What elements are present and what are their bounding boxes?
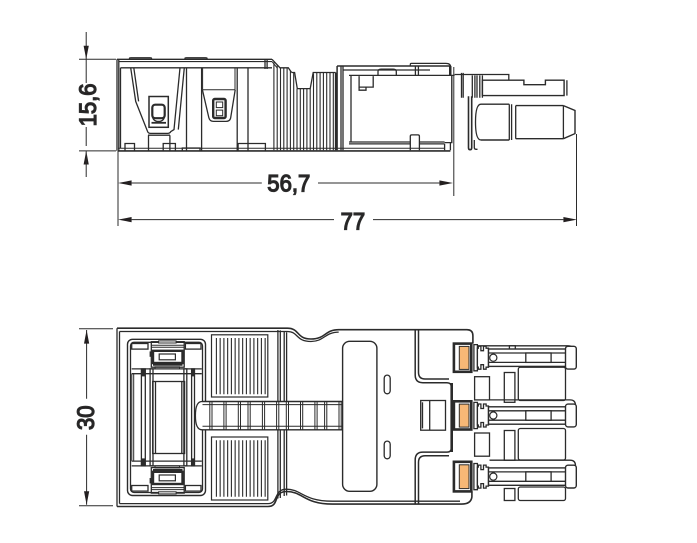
svg-text:15,6: 15,6 bbox=[74, 83, 101, 126]
svg-text:56,7: 56,7 bbox=[267, 170, 310, 197]
svg-text:30: 30 bbox=[72, 405, 99, 430]
svg-text:77: 77 bbox=[341, 208, 366, 235]
